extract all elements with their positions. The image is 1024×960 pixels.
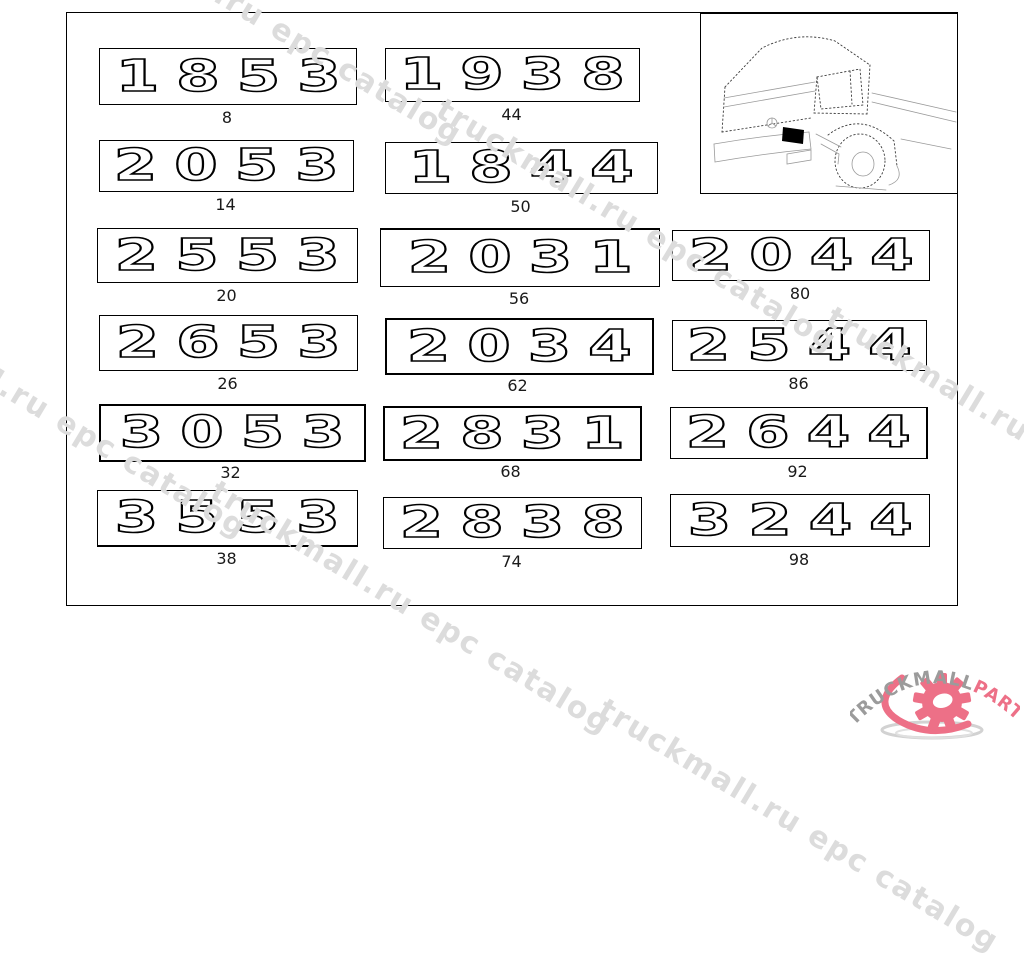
ref-number: 38 (97, 549, 356, 568)
badge-cell: 2553 20 (97, 228, 356, 281)
ref-number: 68 (383, 462, 638, 481)
ref-number: 14 (99, 195, 352, 214)
model-badge-2544[interactable]: 2544 (672, 320, 927, 371)
ref-number: 20 (97, 286, 356, 305)
badge-number: 3553 (98, 496, 357, 540)
model-badge-2653[interactable]: 2653 (99, 315, 358, 371)
badge-number: 1853 (99, 55, 357, 99)
ref-number: 44 (385, 105, 638, 124)
badge-number: 1938 (385, 53, 640, 97)
model-badge-1938[interactable]: 1938 (385, 48, 640, 102)
badge-cell: 2838 74 (383, 497, 640, 547)
truck-cab-line-drawing-icon (701, 14, 957, 193)
badge-number: 3244 (670, 499, 929, 543)
ref-number: 86 (672, 374, 925, 393)
model-badge-2838[interactable]: 2838 (383, 497, 642, 549)
badge-number: 3053 (103, 411, 362, 455)
badge-number: 2053 (99, 144, 354, 188)
badge-cell: 2031 56 (380, 228, 658, 284)
ref-number: 92 (670, 462, 925, 481)
ref-number: 32 (99, 463, 362, 482)
model-badge-2831[interactable]: 2831 (383, 406, 642, 461)
model-badge-2553[interactable]: 2553 (97, 228, 358, 283)
badge-location-marker[interactable] (782, 127, 804, 144)
truckmall-parts-logo[interactable]: TRUCKMALLPARTS (850, 650, 1020, 748)
badge-cell: 2644 92 (670, 407, 925, 457)
ref-number: 50 (385, 197, 656, 216)
model-badge-2644[interactable]: 2644 (670, 407, 928, 459)
ref-number: 74 (383, 552, 640, 571)
ref-number: 56 (380, 289, 658, 308)
badge-cell: 2034 62 (385, 318, 650, 371)
badge-cell: 3053 32 (99, 404, 362, 458)
badge-number: 2031 (390, 236, 649, 280)
model-badge-1844[interactable]: 1844 (385, 142, 658, 194)
badge-number: 2553 (98, 234, 357, 278)
ref-number: 80 (672, 284, 928, 303)
badge-cell: 2544 86 (672, 320, 925, 369)
model-badge-3244[interactable]: 3244 (670, 494, 930, 547)
badge-cell: 1853 8 (99, 48, 355, 103)
badge-number: 2044 (672, 234, 930, 278)
model-badge-2044[interactable]: 2044 (672, 230, 930, 281)
badge-number: 2838 (383, 501, 642, 545)
badge-number: 1844 (392, 146, 651, 190)
ref-number: 62 (385, 376, 650, 395)
ref-number: 98 (670, 550, 928, 569)
badge-cell: 1844 50 (385, 142, 656, 192)
model-badge-2031[interactable]: 2031 (380, 228, 660, 287)
badge-number: 2034 (390, 325, 649, 369)
model-badge-1853[interactable]: 1853 (99, 48, 357, 105)
badge-cell: 2044 80 (672, 230, 928, 279)
truckmall-parts-logo-icon: TRUCKMALLPARTS (850, 650, 1020, 748)
badge-cell: 3553 38 (97, 490, 356, 544)
ref-number: 26 (99, 374, 356, 393)
badge-cell: 1938 44 (385, 48, 638, 100)
badge-number: 2644 (670, 411, 928, 455)
badge-number: 2544 (672, 324, 927, 368)
model-badge-3553[interactable]: 3553 (97, 490, 358, 547)
ref-number: 8 (99, 108, 355, 127)
model-badge-2053[interactable]: 2053 (99, 140, 354, 192)
badge-cell: 2831 68 (383, 406, 638, 457)
model-badge-2034[interactable]: 2034 (385, 318, 654, 375)
model-badge-3053[interactable]: 3053 (99, 404, 366, 462)
badge-number: 2653 (99, 321, 358, 365)
badge-cell: 2053 14 (99, 140, 352, 190)
badge-number: 2831 (383, 412, 642, 456)
badge-cell: 2653 26 (99, 315, 356, 369)
truck-location-inset (700, 13, 958, 194)
badge-cell: 3244 98 (670, 494, 928, 545)
